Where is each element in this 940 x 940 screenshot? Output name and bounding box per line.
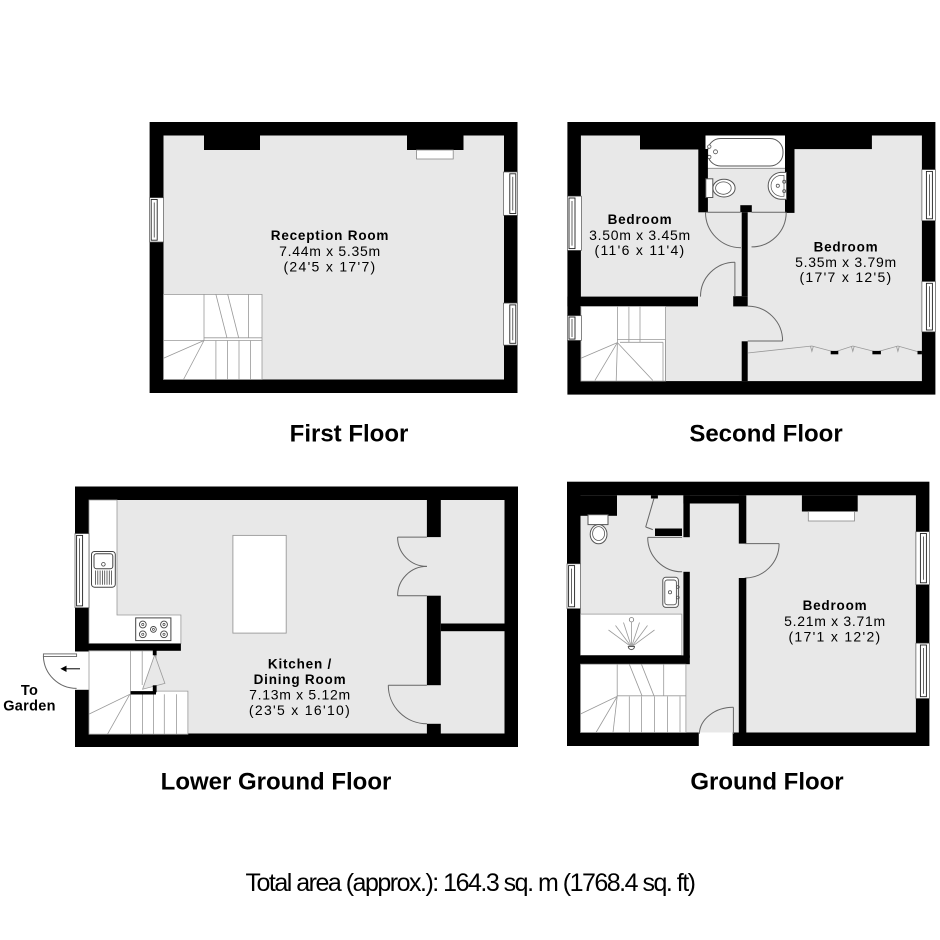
- svg-text:(11'6 x 11'4): (11'6 x 11'4): [595, 242, 686, 258]
- svg-text:Second Floor: Second Floor: [689, 421, 842, 448]
- svg-text:Bedroom: Bedroom: [608, 212, 673, 227]
- svg-text:(17'1 x 12'2): (17'1 x 12'2): [788, 629, 881, 645]
- svg-text:Lower Ground Floor: Lower Ground Floor: [161, 769, 392, 796]
- svg-text:Kitchen /: Kitchen /: [268, 657, 332, 672]
- svg-text:First Floor: First Floor: [290, 421, 409, 448]
- svg-text:(17'7 x 12'5): (17'7 x 12'5): [799, 269, 892, 285]
- svg-text:(23'5 x 16'10): (23'5 x 16'10): [249, 702, 351, 718]
- svg-text:Dining Room: Dining Room: [254, 672, 347, 687]
- svg-text:5.35m x 3.79m: 5.35m x 3.79m: [795, 254, 897, 270]
- svg-text:Garden: Garden: [3, 699, 56, 715]
- svg-text:5.21m x 3.71m: 5.21m x 3.71m: [784, 613, 886, 629]
- svg-text:Bedroom: Bedroom: [814, 240, 879, 255]
- svg-text:3.50m x 3.45m: 3.50m x 3.45m: [589, 227, 691, 243]
- svg-text:Total area (approx.): 164.3 sq: Total area (approx.): 164.3 sq. m (1768.…: [246, 869, 695, 897]
- svg-text:Reception Room: Reception Room: [271, 228, 389, 243]
- svg-text:7.13m x 5.12m: 7.13m x 5.12m: [249, 687, 351, 703]
- svg-text:7.44m x 5.35m: 7.44m x 5.35m: [279, 243, 381, 259]
- svg-text:Ground Floor: Ground Floor: [690, 769, 843, 796]
- svg-text:(24'5 x 17'7): (24'5 x 17'7): [283, 259, 376, 275]
- svg-text:Bedroom: Bedroom: [803, 598, 868, 613]
- svg-text:To: To: [21, 683, 38, 699]
